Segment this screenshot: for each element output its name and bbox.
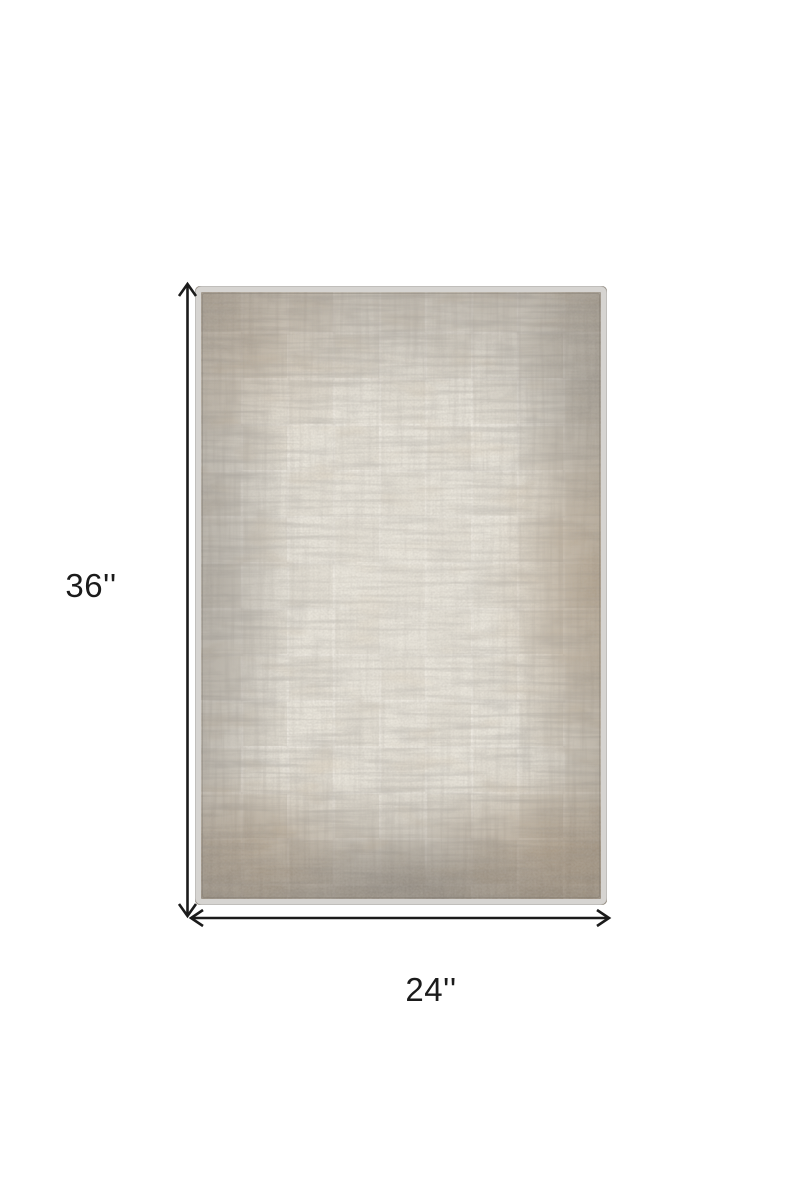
rug-image xyxy=(195,286,607,905)
width-dimension-arrow xyxy=(184,904,616,932)
height-dimension-label: 36'' xyxy=(41,567,141,605)
height-dimension-arrow xyxy=(174,279,201,921)
width-dimension-label: 24'' xyxy=(381,971,481,1009)
rug-pile-texture xyxy=(195,286,607,905)
product-dimension-diagram: 36'' 24'' xyxy=(0,0,800,1202)
